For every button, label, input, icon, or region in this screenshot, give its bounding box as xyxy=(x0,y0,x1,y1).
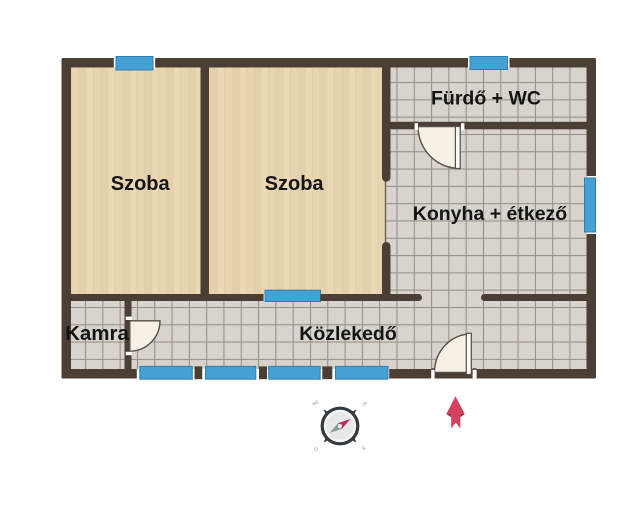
svg-text:Konyha + étkező: Konyha + étkező xyxy=(413,203,568,225)
svg-text:Közlekedő: Közlekedő xyxy=(299,323,397,345)
svg-text:Fürdő + WC: Fürdő + WC xyxy=(431,87,541,109)
svg-text:Szoba: Szoba xyxy=(111,173,171,195)
svg-text:Szoba: Szoba xyxy=(265,173,325,195)
svg-text:Kamra: Kamra xyxy=(65,322,129,345)
